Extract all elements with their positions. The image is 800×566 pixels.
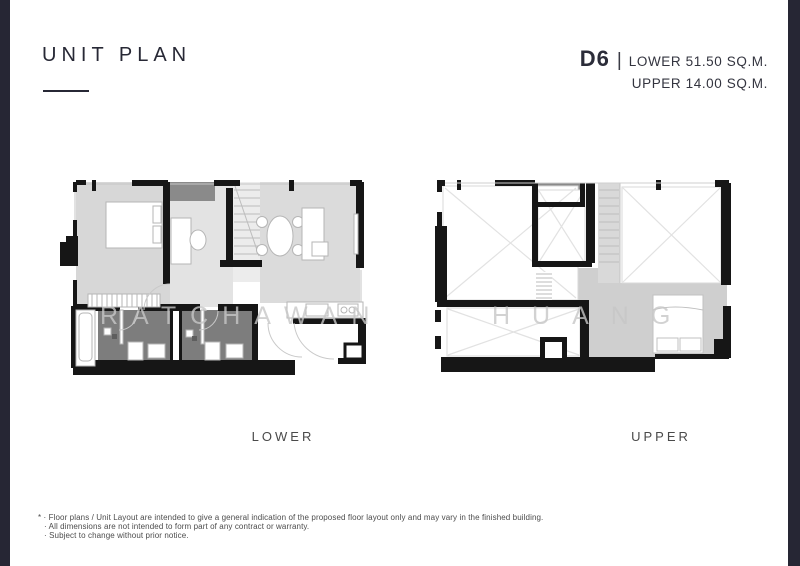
page-title: UNIT PLAN bbox=[42, 44, 191, 67]
footnotes: * · Floor plans / Unit Layout are intend… bbox=[38, 514, 543, 540]
unit-plan-page: UNIT PLAN D6 | LOWER 51.50 SQ.M. UPPER 1… bbox=[0, 0, 800, 566]
left-edge-bar bbox=[0, 0, 10, 566]
lower-area-label: LOWER 51.50 SQ.M. bbox=[629, 54, 768, 69]
upper-area-label: UPPER 14.00 SQ.M. bbox=[580, 76, 768, 91]
lower-floor-plan bbox=[68, 160, 376, 390]
title-underline bbox=[43, 90, 89, 92]
unit-separator: | bbox=[617, 50, 622, 72]
unit-info: D6 | LOWER 51.50 SQ.M. UPPER 14.00 SQ.M. bbox=[580, 46, 768, 91]
upper-floor-plan bbox=[435, 160, 743, 390]
upper-plan-wall-notch bbox=[545, 342, 562, 358]
lower-plan-label: LOWER bbox=[233, 429, 333, 444]
right-edge-bar bbox=[788, 0, 800, 566]
upper-plan-bed bbox=[653, 295, 703, 353]
footnote-line-3: · Subject to change without prior notice… bbox=[38, 532, 543, 541]
unit-code: D6 bbox=[580, 46, 610, 72]
upper-plan-label: UPPER bbox=[611, 429, 711, 444]
